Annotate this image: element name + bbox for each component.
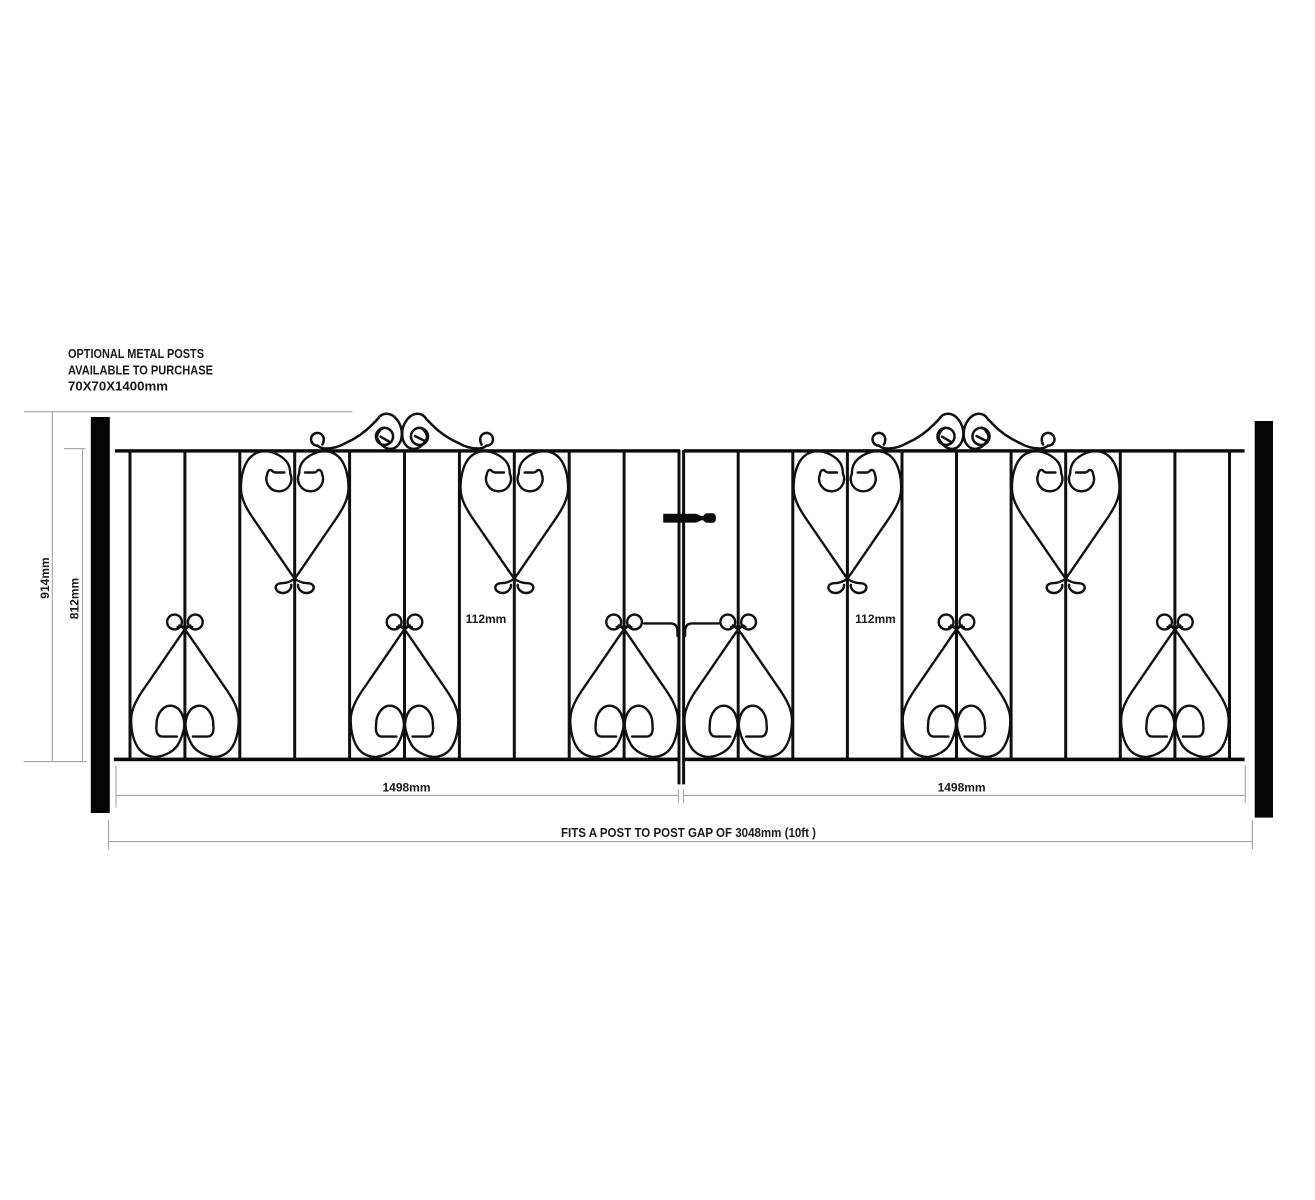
svg-text:FITS A POST TO POST GAP OF 304: FITS A POST TO POST GAP OF 3048mm (10ft … bbox=[561, 825, 816, 840]
svg-text:1498mm: 1498mm bbox=[382, 781, 430, 795]
svg-text:914mm: 914mm bbox=[38, 557, 52, 598]
svg-text:1498mm: 1498mm bbox=[938, 781, 986, 795]
svg-text:812mm: 812mm bbox=[68, 578, 82, 619]
svg-text:112mm: 112mm bbox=[855, 612, 896, 626]
svg-text:AVAILABLE TO PURCHASE: AVAILABLE TO PURCHASE bbox=[68, 363, 213, 377]
svg-text:70X70X1400mm: 70X70X1400mm bbox=[68, 380, 168, 394]
svg-text:OPTIONAL METAL POSTS: OPTIONAL METAL POSTS bbox=[68, 347, 204, 361]
svg-text:112mm: 112mm bbox=[466, 612, 507, 626]
